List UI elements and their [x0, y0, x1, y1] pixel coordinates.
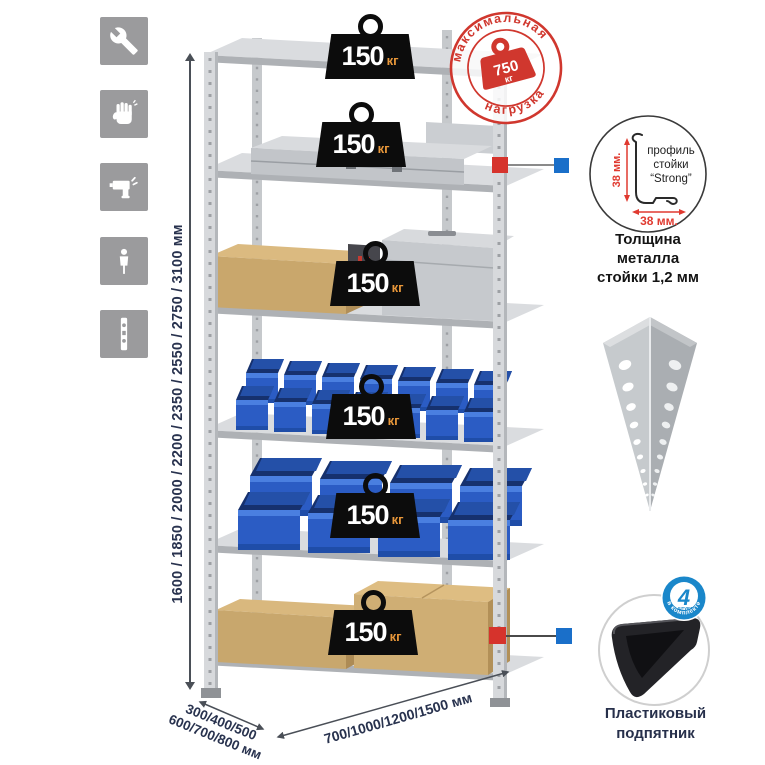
- load-value: 150: [347, 268, 389, 299]
- wrench-icon: [109, 26, 139, 56]
- gloves-icon-tile: [100, 90, 148, 138]
- quantity-badge: 4 штуки в комплекте: [660, 574, 708, 622]
- callout-blue-marker-bottom: [556, 628, 572, 644]
- metal-post-photo: [595, 303, 705, 523]
- height-dimension-line: [189, 60, 191, 682]
- load-unit: кг: [392, 280, 404, 295]
- foot-caption: Пластиковый подпятник: [588, 704, 723, 744]
- drill-icon-tile: [100, 163, 148, 211]
- load-unit: кг: [392, 512, 404, 527]
- post-profile-detail: 38 мм. 38 мм. профиль стойки “Strong”: [586, 112, 710, 236]
- person-height-icon: [110, 247, 138, 275]
- drill-icon: [109, 172, 139, 202]
- load-unit: кг: [387, 53, 399, 68]
- load-value: 150: [347, 500, 389, 531]
- shelf-load-badge: 150кг: [330, 241, 420, 306]
- profile-dim-vertical-label: 38 мм.: [611, 153, 623, 188]
- height-dimension-label: 1600 / 1850 / 2000 / 2200 / 2350 / 2550 …: [170, 179, 186, 649]
- work-gloves-icon: [109, 99, 139, 129]
- load-unit: кг: [378, 141, 390, 156]
- profile-caption-line1: Толщина металла: [583, 230, 713, 268]
- foot-caption-line1: Пластиковый: [588, 704, 723, 724]
- callout-blue-marker-top: [554, 158, 569, 173]
- shelf-load-badge: 150кг: [326, 374, 416, 439]
- foot-caption-line2: подпятник: [588, 724, 723, 744]
- shelf-load-badge: 150кг: [330, 473, 420, 538]
- shelf-load-badge: 150кг: [316, 102, 406, 167]
- callout-red-marker-top: [492, 157, 508, 173]
- rack-post-icon-tile: [100, 310, 148, 358]
- load-unit: кг: [388, 413, 400, 428]
- profile-caption: Толщина металла стойки 1,2 мм: [583, 230, 713, 287]
- person-icon-tile: [100, 237, 148, 285]
- shelf-load-badge: 150кг: [328, 590, 418, 655]
- callout-line-bottom: [506, 635, 556, 637]
- profile-label-line2: стойки: [653, 159, 688, 171]
- load-value: 150: [333, 129, 375, 160]
- profile-label-line3: “Strong”: [650, 173, 692, 185]
- profile-label-line1: профиль: [647, 145, 695, 157]
- height-dimension-arrow-top: [185, 53, 195, 61]
- wrench-icon-tile: [100, 17, 148, 65]
- load-value: 150: [343, 401, 385, 432]
- callout-red-marker-bottom: [489, 627, 506, 644]
- shelf-load-badge: 150кг: [325, 14, 415, 79]
- profile-dim-horizontal-label: 38 мм.: [640, 214, 678, 228]
- callout-line-top: [508, 164, 554, 166]
- load-unit: кг: [390, 629, 402, 644]
- load-value: 150: [342, 41, 384, 72]
- infographic-canvas: 1600 / 1850 / 2000 / 2200 / 2350 / 2550 …: [0, 0, 765, 765]
- profile-caption-line2: стойки 1,2 мм: [583, 268, 713, 287]
- load-value: 150: [345, 617, 387, 648]
- rack-post-icon: [109, 315, 139, 353]
